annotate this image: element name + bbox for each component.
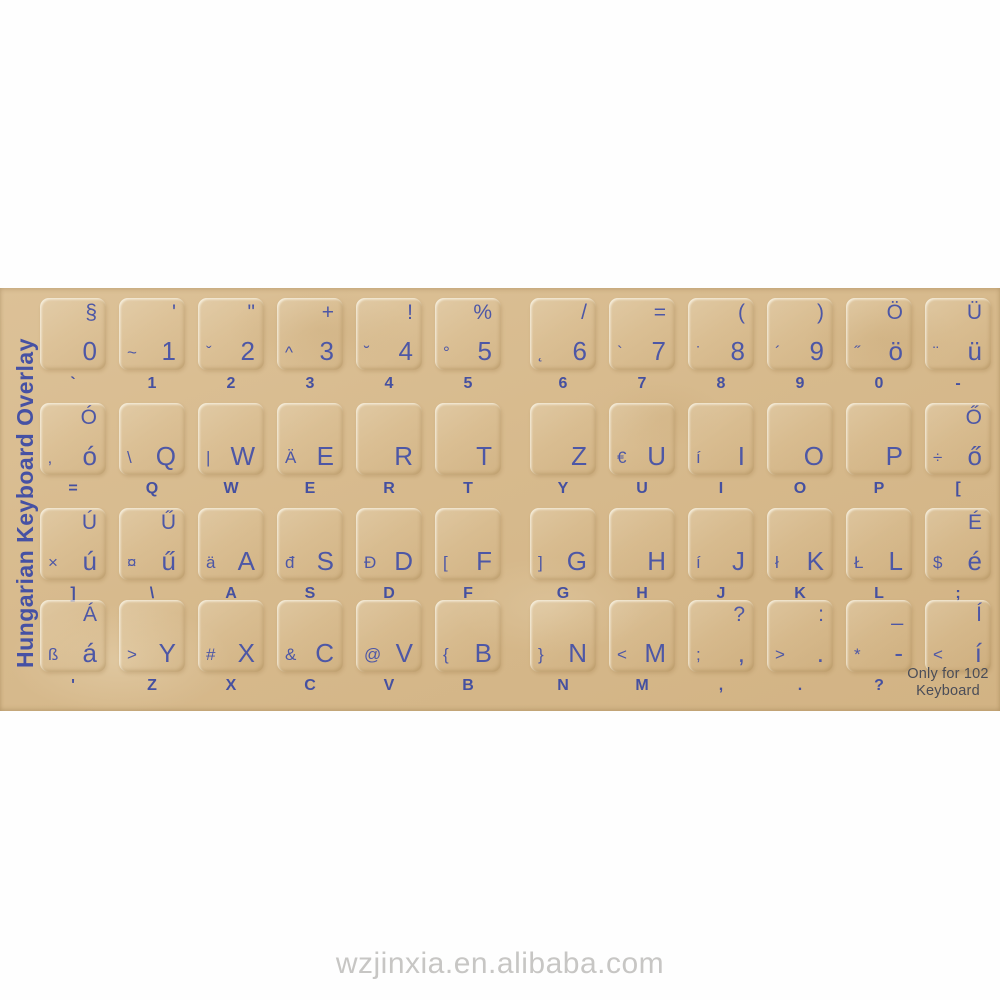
key-char-base: , bbox=[738, 640, 745, 666]
key-char-base: ó bbox=[83, 443, 97, 469]
key-char-base: ű bbox=[162, 548, 176, 574]
key-cell: Ő÷ő[ bbox=[925, 403, 991, 498]
key-sticker: #X bbox=[198, 600, 264, 672]
key-below-label: 4 bbox=[356, 375, 422, 393]
key-char-altgr: & bbox=[285, 646, 296, 663]
key-char-altgr: < bbox=[617, 646, 627, 663]
key-cell: ŁLL bbox=[846, 508, 912, 603]
key-sticker: Áßá bbox=[40, 600, 106, 672]
key-cell: {BB bbox=[435, 600, 501, 695]
key-char-base: 7 bbox=[652, 338, 666, 364]
key-cell: <MM bbox=[609, 600, 675, 695]
key-char-base: I bbox=[738, 443, 745, 469]
key-char-altgr: @ bbox=[364, 646, 381, 663]
key-cell: :>.. bbox=[767, 600, 833, 695]
key-cell: íII bbox=[688, 403, 754, 498]
key-char-shift: + bbox=[322, 302, 334, 323]
key-cell: }NN bbox=[530, 600, 596, 695]
key-cell: Ö˝ö0 bbox=[846, 298, 912, 393]
key-char-shift: Á bbox=[83, 604, 97, 625]
key-cell: Áßá' bbox=[40, 600, 106, 695]
key-char-base: á bbox=[83, 640, 97, 666]
footnote: Only for 102 Keyboard bbox=[892, 666, 1000, 700]
key-char-shift: Ű bbox=[161, 512, 176, 533]
key-char-base: é bbox=[968, 548, 982, 574]
key-char-shift: / bbox=[581, 302, 587, 323]
key-char-base: 6 bbox=[573, 338, 587, 364]
key-char-shift: ' bbox=[172, 302, 176, 323]
key-char-base: ö bbox=[889, 338, 903, 364]
key-row: Ú×ú]Ű¤ű\äAAđSSĐDD[FF]GGHHíJJłKKŁLLÉ$é; bbox=[40, 508, 1000, 603]
key-char-base: R bbox=[394, 443, 413, 469]
key-char-shift: " bbox=[248, 302, 255, 323]
key-below-label: R bbox=[356, 480, 422, 498]
key-below-label: 1 bbox=[119, 375, 185, 393]
key-char-base: Q bbox=[156, 443, 176, 469]
key-below-label: E bbox=[277, 480, 343, 498]
key-sticker: |W bbox=[198, 403, 264, 475]
key-char-altgr: > bbox=[127, 646, 137, 663]
key-below-label: Q bbox=[119, 480, 185, 498]
key-sticker: đS bbox=[277, 508, 343, 580]
key-below-label: O bbox=[767, 480, 833, 498]
key-cell: HH bbox=[609, 508, 675, 603]
key-sticker: Ú×ú bbox=[40, 508, 106, 580]
key-char-altgr: ˘ bbox=[364, 344, 370, 361]
key-char-base: 1 bbox=[162, 338, 176, 364]
key-char-base: 5 bbox=[478, 338, 492, 364]
overlay-sticker-sheet: §0`'~11"ˇ22+^33!˘44%°55/˛66=`77(˙88)´99Ö… bbox=[0, 288, 1000, 711]
key-char-shift: É bbox=[968, 512, 982, 533]
footnote-line2: Keyboard bbox=[892, 683, 1000, 700]
key-char-altgr: { bbox=[443, 646, 449, 663]
key-sticker: äA bbox=[198, 508, 264, 580]
key-below-label: N bbox=[530, 677, 596, 695]
key-sticker: >Y bbox=[119, 600, 185, 672]
key-char-base: D bbox=[394, 548, 413, 574]
key-char-base: P bbox=[886, 443, 903, 469]
key-char-base: T bbox=[476, 443, 492, 469]
key-cell: RR bbox=[356, 403, 422, 498]
key-sticker: @V bbox=[356, 600, 422, 672]
key-char-altgr: ł bbox=[775, 554, 779, 571]
key-cell: [FF bbox=[435, 508, 501, 603]
key-char-altgr: # bbox=[206, 646, 215, 663]
key-cell: ÄEE bbox=[277, 403, 343, 498]
key-char-shift: Ő bbox=[966, 407, 982, 428]
key-below-label: V bbox=[356, 677, 422, 695]
key-char-altgr: × bbox=[48, 554, 58, 571]
key-char-shift: = bbox=[654, 302, 666, 323]
key-sticker: T bbox=[435, 403, 501, 475]
key-below-label: = bbox=[40, 480, 106, 498]
key-below-label: - bbox=[925, 375, 991, 393]
key-below-label: 9 bbox=[767, 375, 833, 393]
key-char-altgr: ä bbox=[206, 554, 215, 571]
key-char-base: H bbox=[647, 548, 666, 574]
key-sticker: O bbox=[767, 403, 833, 475]
key-sticker: "ˇ2 bbox=[198, 298, 264, 370]
watermark: wzjinxia.en.alibaba.com bbox=[0, 947, 1000, 981]
key-char-shift: _ bbox=[891, 604, 903, 625]
key-char-base: 3 bbox=[320, 338, 334, 364]
key-below-label: 2 bbox=[198, 375, 264, 393]
key-below-label: 0 bbox=[846, 375, 912, 393]
key-below-label: M bbox=[609, 677, 675, 695]
key-char-base: 0 bbox=[83, 338, 97, 364]
footnote-line1: Only for 102 bbox=[892, 666, 1000, 683]
key-sticker: ŁL bbox=[846, 508, 912, 580]
key-below-label: ' bbox=[40, 677, 106, 695]
key-sticker: \Q bbox=[119, 403, 185, 475]
key-cell: Ű¤ű\ bbox=[119, 508, 185, 603]
key-char-base: E bbox=[317, 443, 334, 469]
key-sticker: Ő÷ő bbox=[925, 403, 991, 475]
key-below-label: 6 bbox=[530, 375, 596, 393]
key-char-altgr: ‚ bbox=[48, 449, 52, 466]
key-cell: Ú×ú] bbox=[40, 508, 106, 603]
key-char-base: . bbox=[817, 640, 824, 666]
key-char-base: 4 bbox=[399, 338, 413, 364]
key-sticker: Ö˝ö bbox=[846, 298, 912, 370]
key-char-base: Z bbox=[571, 443, 587, 469]
key-below-label: B bbox=[435, 677, 501, 695]
key-char-shift: Ü bbox=[967, 302, 982, 323]
key-sticker: :>. bbox=[767, 600, 833, 672]
key-char-altgr: [ bbox=[443, 554, 448, 571]
key-char-base: O bbox=[804, 443, 824, 469]
key-char-base: ü bbox=[968, 338, 982, 364]
key-cell: TT bbox=[435, 403, 501, 498]
key-cell: %°55 bbox=[435, 298, 501, 393]
key-sticker: )´9 bbox=[767, 298, 833, 370]
key-cell: \QQ bbox=[119, 403, 185, 498]
key-below-label: Z bbox=[119, 677, 185, 695]
key-char-base: L bbox=[889, 548, 903, 574]
key-sticker: ÄE bbox=[277, 403, 343, 475]
key-char-base: 9 bbox=[810, 338, 824, 364]
key-below-label: 8 bbox=[688, 375, 754, 393]
key-cell: =`77 bbox=[609, 298, 675, 393]
key-char-altgr: ˇ bbox=[206, 344, 212, 361]
key-char-shift: Ó bbox=[81, 407, 97, 428]
key-sticker: {B bbox=[435, 600, 501, 672]
key-char-altgr: ` bbox=[617, 344, 623, 361]
key-char-altgr: } bbox=[538, 646, 544, 663]
key-char-base: - bbox=[894, 640, 903, 666]
key-cell: #XX bbox=[198, 600, 264, 695]
key-sticker: Ű¤ű bbox=[119, 508, 185, 580]
key-cell: +^33 bbox=[277, 298, 343, 393]
key-below-label: U bbox=[609, 480, 675, 498]
key-cell: ?;,, bbox=[688, 600, 754, 695]
key-char-altgr: ´ bbox=[775, 344, 781, 361]
key-sticker: P bbox=[846, 403, 912, 475]
key-below-label: T bbox=[435, 480, 501, 498]
key-char-shift: : bbox=[818, 604, 824, 625]
key-char-altgr: í bbox=[696, 449, 701, 466]
key-cell: "ˇ22 bbox=[198, 298, 264, 393]
key-char-base: Y bbox=[159, 640, 176, 666]
key-char-altgr: ; bbox=[696, 646, 701, 663]
key-char-altgr: ß bbox=[48, 646, 58, 663]
key-char-base: A bbox=[238, 548, 255, 574]
key-below-label: W bbox=[198, 480, 264, 498]
key-cell: '~11 bbox=[119, 298, 185, 393]
key-char-altgr: ˛ bbox=[538, 344, 544, 361]
key-below-label: C bbox=[277, 677, 343, 695]
key-char-altgr: \ bbox=[127, 449, 132, 466]
key-char-base: W bbox=[230, 443, 255, 469]
key-char-altgr: Đ bbox=[364, 554, 376, 571]
key-sticker: łK bbox=[767, 508, 833, 580]
key-char-shift: Ö bbox=[887, 302, 903, 323]
key-char-base: F bbox=[476, 548, 492, 574]
key-char-base: ú bbox=[83, 548, 97, 574]
key-below-label: I bbox=[688, 480, 754, 498]
key-sticker: =`7 bbox=[609, 298, 675, 370]
key-char-shift: % bbox=[473, 302, 492, 323]
product-photo: §0`'~11"ˇ22+^33!˘44%°55/˛66=`77(˙88)´99Ö… bbox=[0, 0, 1000, 1000]
sticker-rows: §0`'~11"ˇ22+^33!˘44%°55/˛66=`77(˙88)´99Ö… bbox=[0, 288, 1000, 711]
key-cell: PP bbox=[846, 403, 912, 498]
key-below-label: 5 bbox=[435, 375, 501, 393]
key-sticker: }N bbox=[530, 600, 596, 672]
key-char-altgr: ¨ bbox=[933, 344, 939, 361]
key-char-altgr: Ä bbox=[285, 449, 296, 466]
key-sticker: %°5 bbox=[435, 298, 501, 370]
key-below-label: Y bbox=[530, 480, 596, 498]
key-cell: &CC bbox=[277, 600, 343, 695]
key-below-label: [ bbox=[925, 480, 991, 498]
key-cell: íJJ bbox=[688, 508, 754, 603]
key-char-altgr: đ bbox=[285, 554, 294, 571]
key-char-altgr: * bbox=[854, 646, 861, 663]
key-below-label: P bbox=[846, 480, 912, 498]
key-char-altgr: Ł bbox=[854, 554, 863, 571]
key-cell: ]GG bbox=[530, 508, 596, 603]
key-sticker: ĐD bbox=[356, 508, 422, 580]
key-cell: É$é; bbox=[925, 508, 991, 603]
key-char-altgr: ° bbox=[443, 344, 450, 361]
key-cell: @VV bbox=[356, 600, 422, 695]
key-sticker: _*- bbox=[846, 600, 912, 672]
key-sticker: Z bbox=[530, 403, 596, 475]
key-cell: )´99 bbox=[767, 298, 833, 393]
key-below-label: X bbox=[198, 677, 264, 695]
key-sticker: /˛6 bbox=[530, 298, 596, 370]
key-sticker: H bbox=[609, 508, 675, 580]
key-char-base: J bbox=[732, 548, 745, 574]
key-sticker: Ü¨ü bbox=[925, 298, 991, 370]
key-char-altgr: ˝ bbox=[854, 344, 860, 361]
key-cell: łKK bbox=[767, 508, 833, 603]
key-sticker: ?;, bbox=[688, 600, 754, 672]
key-char-base: C bbox=[315, 640, 334, 666]
key-cell: ĐDD bbox=[356, 508, 422, 603]
product-title-vertical: Hungarian Keyboard Overlay bbox=[12, 338, 39, 668]
key-char-altgr: € bbox=[617, 449, 626, 466]
key-char-altgr: < bbox=[933, 646, 943, 663]
key-char-altgr: ] bbox=[538, 554, 543, 571]
key-char-altgr: > bbox=[775, 646, 785, 663]
key-char-altgr: ~ bbox=[127, 344, 137, 361]
key-sticker: <M bbox=[609, 600, 675, 672]
key-char-altgr: $ bbox=[933, 554, 942, 571]
key-sticker: É$é bbox=[925, 508, 991, 580]
key-sticker: +^3 bbox=[277, 298, 343, 370]
key-char-shift: ! bbox=[407, 302, 413, 323]
key-char-shift: Ú bbox=[82, 512, 97, 533]
key-below-label: , bbox=[688, 677, 754, 695]
key-char-base: U bbox=[647, 443, 666, 469]
key-char-shift: ( bbox=[738, 302, 745, 323]
key-below-label: 3 bbox=[277, 375, 343, 393]
key-char-base: N bbox=[568, 640, 587, 666]
key-cell: (˙88 bbox=[688, 298, 754, 393]
key-below-label: ` bbox=[40, 375, 106, 393]
key-cell: ZY bbox=[530, 403, 596, 498]
key-sticker: €U bbox=[609, 403, 675, 475]
key-sticker: [F bbox=[435, 508, 501, 580]
key-row: §0`'~11"ˇ22+^33!˘44%°55/˛66=`77(˙88)´99Ö… bbox=[40, 298, 1000, 393]
key-cell: Ó‚ó= bbox=[40, 403, 106, 498]
key-char-base: K bbox=[807, 548, 824, 574]
key-sticker: (˙8 bbox=[688, 298, 754, 370]
key-char-base: 2 bbox=[241, 338, 255, 364]
key-char-altgr: í bbox=[696, 554, 701, 571]
key-char-base: S bbox=[317, 548, 334, 574]
key-char-altgr: | bbox=[206, 449, 210, 466]
key-char-shift: ) bbox=[817, 302, 824, 323]
key-sticker: '~1 bbox=[119, 298, 185, 370]
key-sticker: !˘4 bbox=[356, 298, 422, 370]
key-char-base: ő bbox=[968, 443, 982, 469]
key-char-altgr: ^ bbox=[285, 344, 293, 361]
key-char-shift: § bbox=[85, 302, 97, 323]
key-cell: Ü¨ü- bbox=[925, 298, 991, 393]
key-sticker: Í<í bbox=[925, 600, 991, 672]
key-cell: €UU bbox=[609, 403, 675, 498]
key-cell: |WW bbox=[198, 403, 264, 498]
key-row: Áßá'>YZ#XX&CC@VV{BB}NN<MM?;,,:>.._*-?Í<í bbox=[40, 600, 1000, 695]
key-cell: !˘44 bbox=[356, 298, 422, 393]
key-char-base: M bbox=[644, 640, 666, 666]
key-char-base: í bbox=[975, 640, 982, 666]
key-sticker: íJ bbox=[688, 508, 754, 580]
key-cell: OO bbox=[767, 403, 833, 498]
key-char-base: B bbox=[475, 640, 492, 666]
key-char-base: V bbox=[396, 640, 413, 666]
key-char-altgr: ¤ bbox=[127, 554, 136, 571]
key-char-base: 8 bbox=[731, 338, 745, 364]
key-row: Ó‚ó=\QQ|WWÄEERRTTZY€UUíIIOOPPŐ÷ő[ bbox=[40, 403, 1000, 498]
key-char-shift: ? bbox=[733, 604, 745, 625]
key-char-base: X bbox=[238, 640, 255, 666]
key-cell: >YZ bbox=[119, 600, 185, 695]
key-below-label: 7 bbox=[609, 375, 675, 393]
key-cell: /˛66 bbox=[530, 298, 596, 393]
key-char-shift: Í bbox=[976, 604, 982, 625]
key-cell: đSS bbox=[277, 508, 343, 603]
key-sticker: R bbox=[356, 403, 422, 475]
key-cell: äAA bbox=[198, 508, 264, 603]
key-sticker: &C bbox=[277, 600, 343, 672]
key-char-altgr: ÷ bbox=[933, 449, 942, 466]
key-char-altgr: ˙ bbox=[696, 344, 702, 361]
key-sticker: íI bbox=[688, 403, 754, 475]
key-sticker: Ó‚ó bbox=[40, 403, 106, 475]
key-char-base: G bbox=[567, 548, 587, 574]
key-below-label: . bbox=[767, 677, 833, 695]
key-sticker: ]G bbox=[530, 508, 596, 580]
key-cell: §0` bbox=[40, 298, 106, 393]
key-sticker: §0 bbox=[40, 298, 106, 370]
